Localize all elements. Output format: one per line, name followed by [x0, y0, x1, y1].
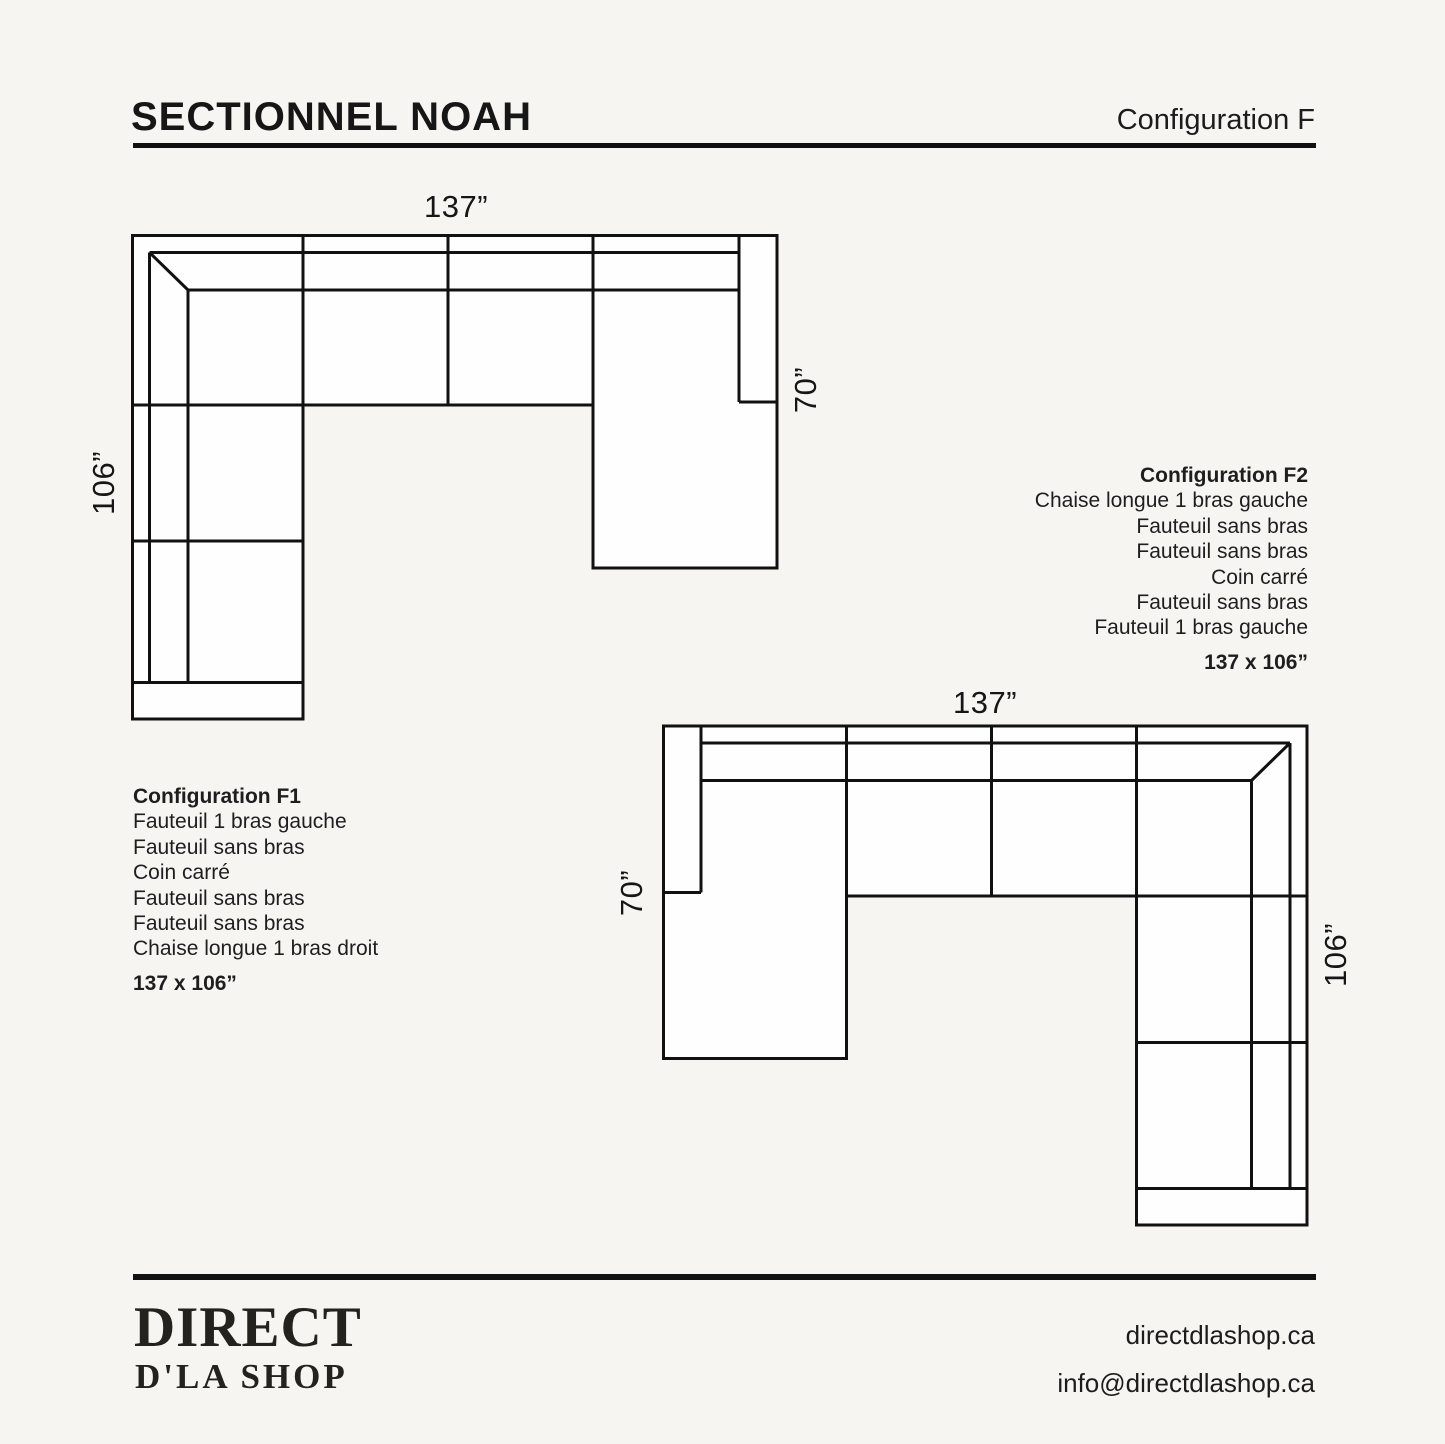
module-line: Coin carré: [1035, 565, 1308, 590]
configuration-dimensions: 137 x 106”: [133, 971, 378, 996]
configuration-f1-block: Configuration F1 Fauteuil 1 bras gauche …: [133, 784, 378, 996]
module-line: Fauteuil sans bras: [133, 835, 378, 860]
configuration-f2-block: Configuration F2 Chaise longue 1 bras ga…: [1035, 463, 1308, 675]
dimension-label-f1-width: 137”: [356, 190, 556, 224]
sofa-outline-f1: [133, 236, 778, 720]
module-line: Fauteuil sans bras: [1035, 514, 1308, 539]
dimension-label-f2-width: 137”: [885, 686, 1085, 720]
brand-logo-line2: D'LA SHOP: [135, 1359, 348, 1394]
sectional-diagram-f1: [129, 232, 780, 722]
dimension-label-f1-left: 106”: [87, 423, 121, 543]
module-line: Fauteuil 1 bras gauche: [133, 809, 378, 834]
module-line: Chaise longue 1 bras gauche: [1035, 488, 1308, 513]
module-line: Fauteuil sans bras: [133, 911, 378, 936]
module-line: Fauteuil 1 bras gauche: [1035, 615, 1308, 640]
dimension-label-f2-right: 106”: [1319, 895, 1353, 1015]
module-line: Fauteuil sans bras: [1035, 590, 1308, 615]
module-line: Chaise longue 1 bras droit: [133, 936, 378, 961]
footer-website: directdlashop.ca: [1126, 1320, 1315, 1351]
module-line: Coin carré: [133, 860, 378, 885]
page-title: SECTIONNEL NOAH: [131, 95, 532, 140]
header-configuration-label: Configuration F: [1117, 104, 1315, 137]
sofa-outline-f2: [664, 726, 1308, 1225]
module-line: Fauteuil sans bras: [1035, 539, 1308, 564]
dimension-label-f2-left: 70”: [615, 833, 649, 953]
configuration-name: Configuration F1: [133, 784, 378, 809]
spec-sheet: SECTIONNEL NOAH Configuration F 137” 106…: [0, 0, 1445, 1444]
footer-email: info@directdlashop.ca: [1057, 1368, 1315, 1399]
dimension-label-f1-right: 70”: [789, 330, 823, 450]
module-line: Fauteuil sans bras: [133, 886, 378, 911]
configuration-name: Configuration F2: [1035, 463, 1308, 488]
sectional-diagram-f2: [660, 722, 1310, 1228]
footer-divider: [133, 1274, 1316, 1280]
brand-logo-line1: DIRECT: [134, 1299, 362, 1356]
configuration-dimensions: 137 x 106”: [1035, 650, 1308, 675]
header-divider: [133, 143, 1316, 148]
